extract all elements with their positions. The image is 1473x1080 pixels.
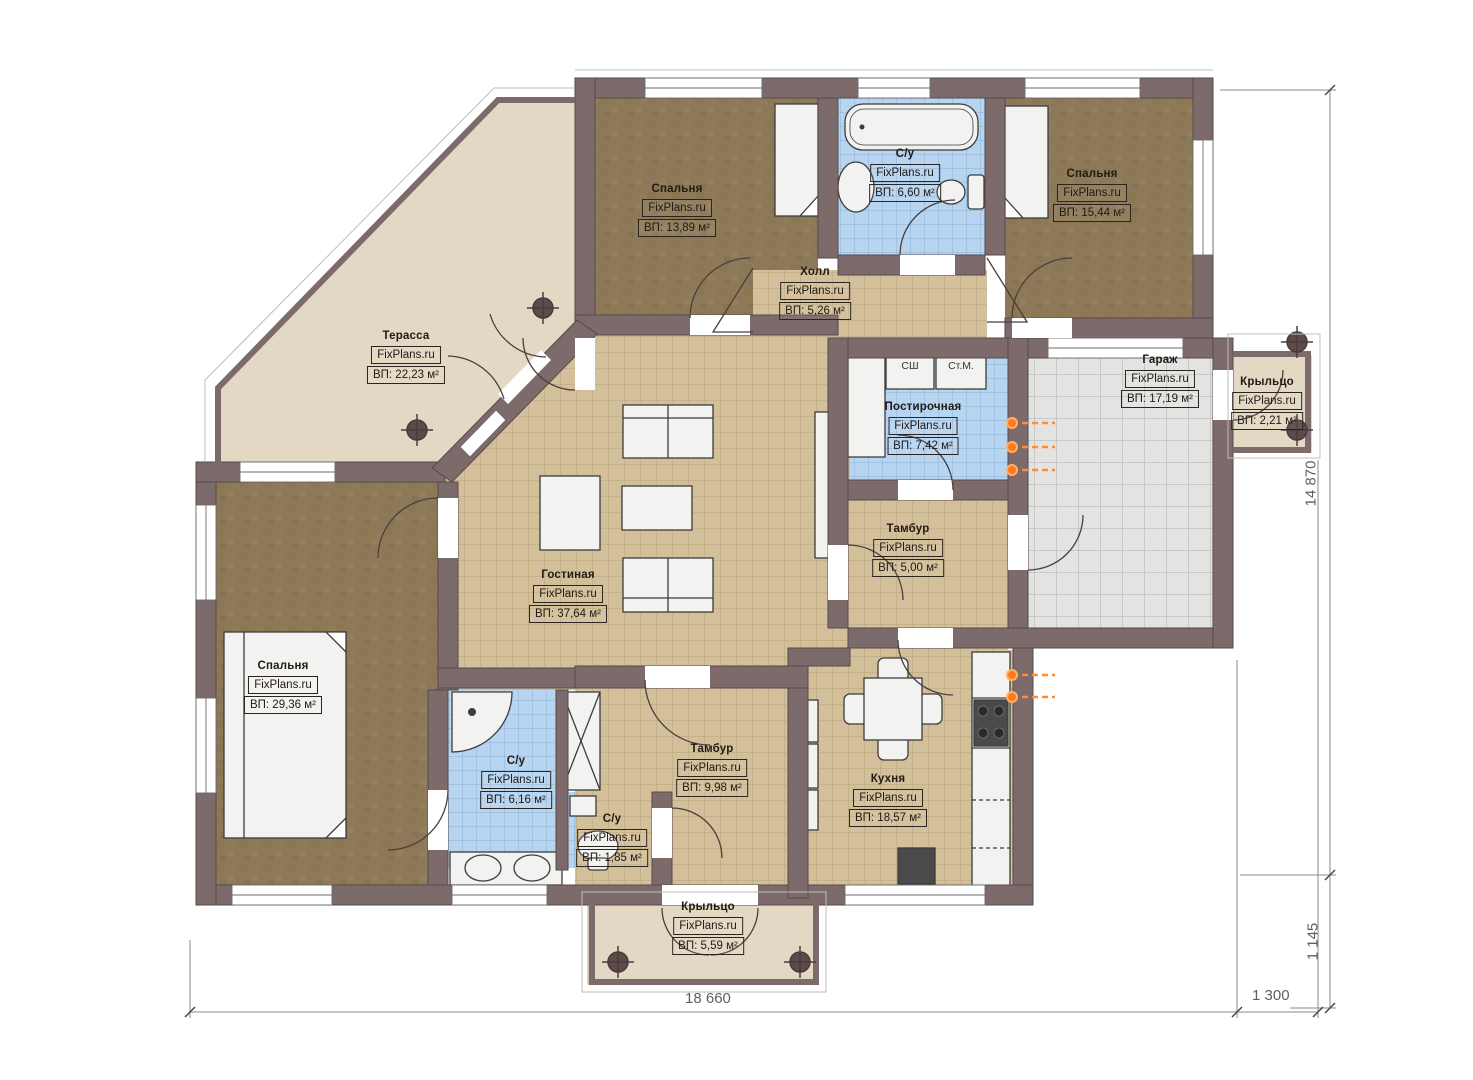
window — [232, 885, 332, 905]
floor-plan: Спальня FixPlans.ru ВП: 13,89 м² С/у Fix… — [0, 0, 1473, 1080]
window — [452, 885, 547, 905]
laundry-counter — [848, 345, 885, 457]
door-opening — [652, 808, 672, 858]
room-label-laundry: Постирочная FixPlans.ru ВП: 7,42 м² — [885, 401, 962, 455]
window — [645, 78, 762, 98]
window — [196, 505, 216, 600]
dimension-bottom-main: 18 660 — [685, 990, 731, 1007]
door-opening — [1012, 318, 1072, 338]
armchair — [540, 476, 600, 550]
room-label-tambour-2: Тамбур FixPlans.ru ВП: 9,98 м² — [676, 743, 748, 797]
kitchen-counter — [972, 652, 1010, 892]
door-opening — [828, 545, 848, 600]
bathtub — [845, 104, 978, 150]
dimension-bottom-porch: 1 300 — [1252, 987, 1290, 1004]
coffee-table — [622, 486, 692, 530]
sofa — [623, 558, 713, 612]
room-label-garage: Гараж FixPlans.ru ВП: 17,19 м² — [1121, 354, 1199, 408]
sink — [465, 855, 501, 881]
room-label-bath-top: С/у FixPlans.ru ВП: 6,60 м² — [869, 148, 941, 202]
door-opening — [898, 480, 953, 500]
room-label-bedroom-2: Спальня FixPlans.ru ВП: 15,44 м² — [1053, 168, 1131, 222]
bed — [775, 104, 818, 216]
dryer-label: СШ — [901, 360, 918, 372]
room-label-kitchen: Кухня FixPlans.ru ВП: 18,57 м² — [849, 773, 927, 827]
door-opening — [1213, 370, 1233, 420]
window — [240, 462, 335, 482]
door-opening — [438, 498, 458, 558]
window — [1025, 78, 1140, 98]
room-label-terrace: Терасса FixPlans.ru ВП: 22,23 м² — [367, 330, 445, 384]
room-label-bedroom-3: Спальня FixPlans.ru ВП: 29,36 м² — [244, 660, 322, 714]
appliance — [898, 848, 935, 884]
room-label-bedroom-1: Спальня FixPlans.ru ВП: 13,89 м² — [638, 183, 716, 237]
door-opening — [1008, 515, 1028, 570]
room-label-bath-185: С/у FixPlans.ru ВП: 1,85 м² — [576, 813, 648, 867]
sink — [514, 855, 550, 881]
washer-label: Ст.М. — [948, 360, 974, 372]
door-opening — [645, 666, 710, 688]
stove — [974, 700, 1008, 746]
door-opening — [898, 628, 953, 648]
window — [196, 698, 216, 793]
bed — [1005, 106, 1048, 218]
dimension-right-main: 14 870 — [1302, 461, 1319, 507]
door-opening — [575, 338, 595, 390]
window — [858, 78, 930, 98]
window — [845, 885, 985, 905]
room-label-living: Гостиная FixPlans.ru ВП: 37,64 м² — [529, 569, 607, 623]
dimension-right-porch: 1 145 — [1304, 923, 1321, 961]
window — [1193, 140, 1213, 255]
room-label-porch-bottom: Крыльцо FixPlans.ru ВП: 5,59 м² — [672, 901, 744, 955]
room-label-bath-616: С/у FixPlans.ru ВП: 6,16 м² — [480, 755, 552, 809]
room-label-tambour-1: Тамбур FixPlans.ru ВП: 5,00 м² — [872, 523, 944, 577]
room-label-porch-right: Крыльцо FixPlans.ru ВП: 2,21 м² — [1231, 376, 1303, 430]
sofa — [623, 405, 713, 458]
door-opening — [900, 255, 955, 275]
room-label-hall: Холл FixPlans.ru ВП: 5,26 м² — [779, 266, 851, 320]
door-opening — [428, 790, 448, 850]
